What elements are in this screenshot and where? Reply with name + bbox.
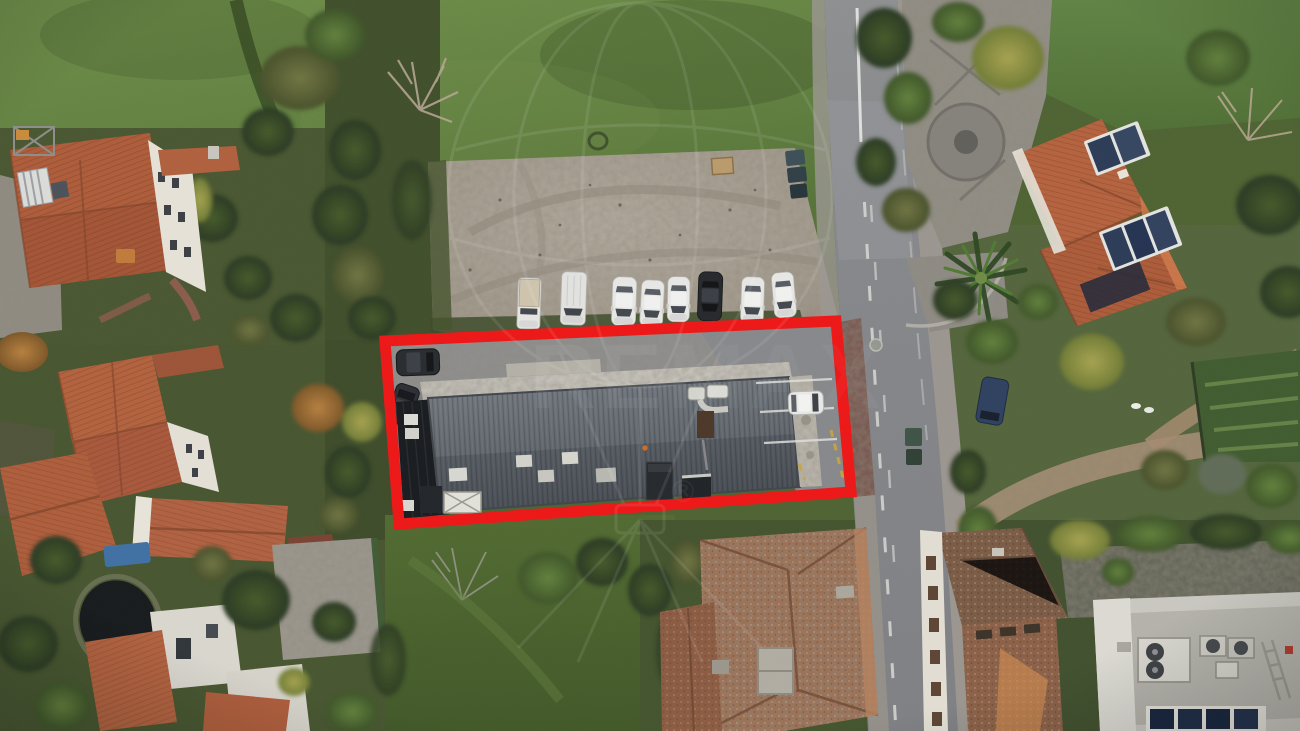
aerial-photo: Top-down drone photo of a long grey-roof… xyxy=(0,0,1300,731)
vignette-overlay xyxy=(0,0,1300,731)
